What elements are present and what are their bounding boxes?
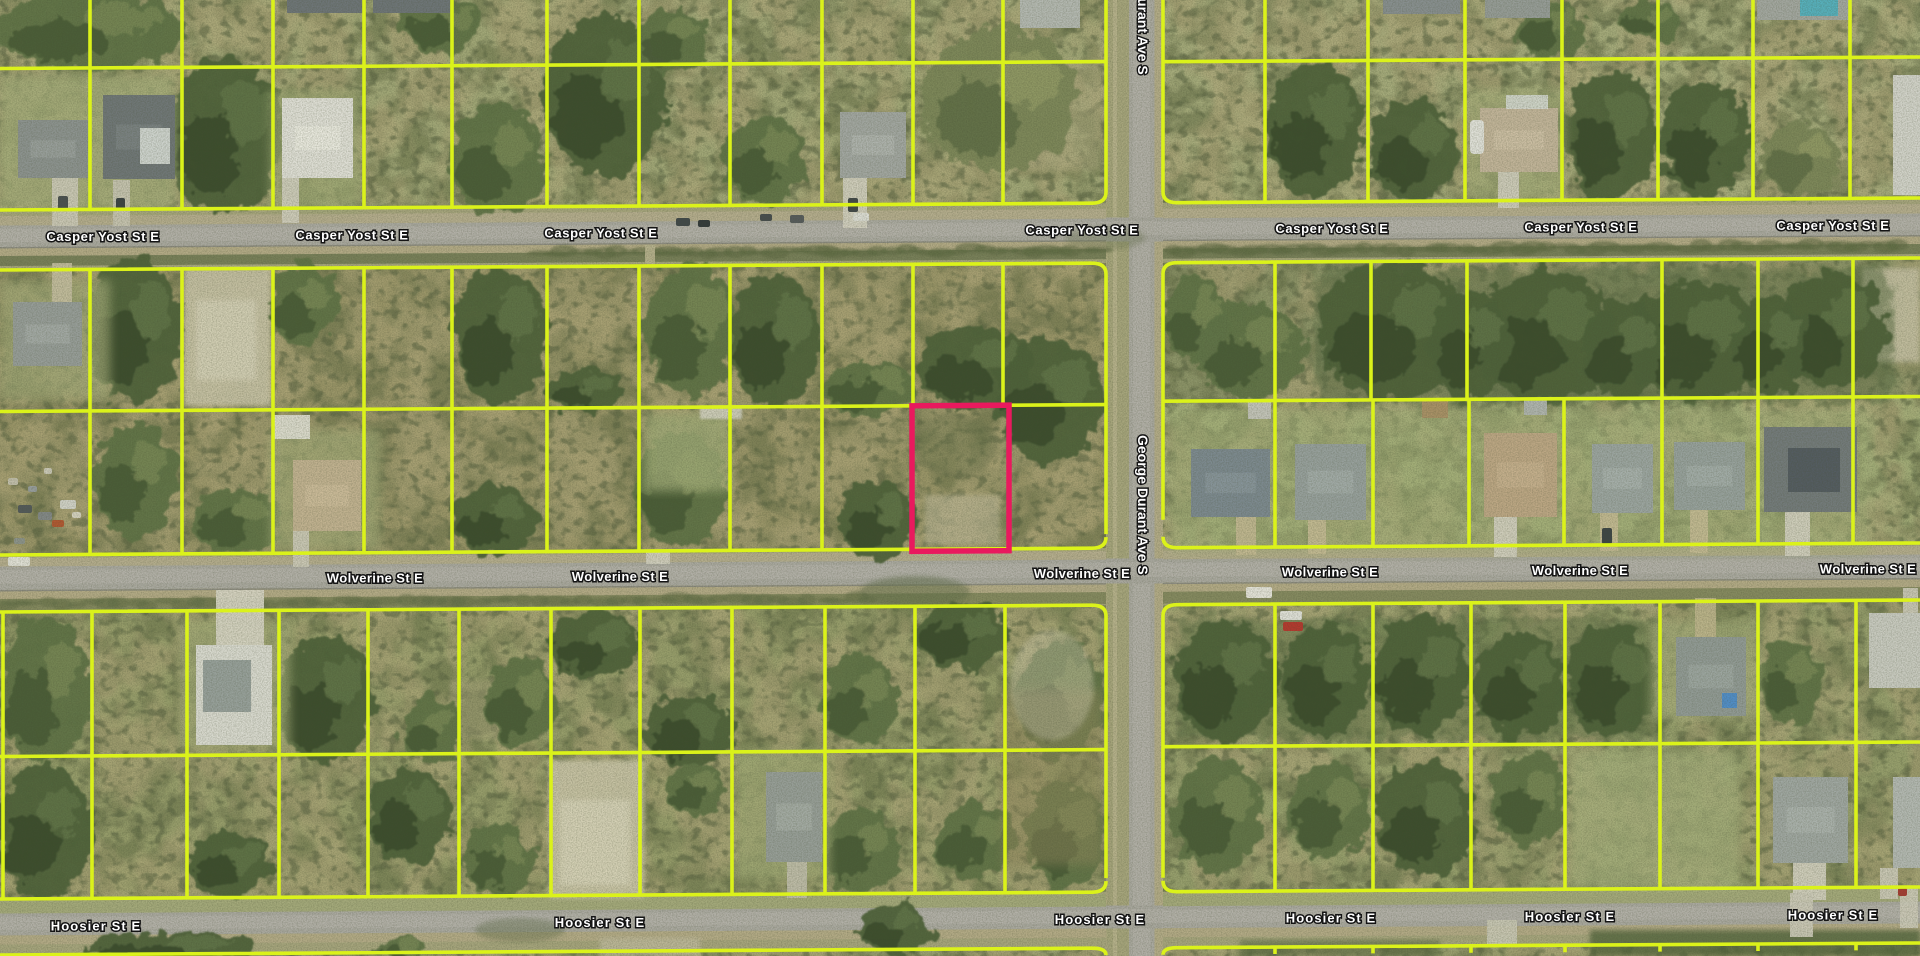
svg-text:Wolverine St E: Wolverine St E — [1532, 563, 1628, 578]
svg-text:Hoosier St E: Hoosier St E — [1525, 909, 1616, 924]
svg-text:Wolverine St E: Wolverine St E — [1282, 565, 1378, 580]
svg-text:Wolverine St E: Wolverine St E — [1820, 561, 1916, 576]
svg-text:George Durant Ave S: George Durant Ave S — [1135, 435, 1151, 575]
svg-text:Hoosier St E: Hoosier St E — [1286, 911, 1377, 926]
svg-text:Casper Yost St E: Casper Yost St E — [1776, 218, 1889, 233]
svg-text:Casper Yost St E: Casper Yost St E — [1025, 223, 1138, 238]
svg-text:Hoosier St E: Hoosier St E — [1788, 908, 1879, 923]
svg-text:Hoosier St E: Hoosier St E — [555, 915, 646, 930]
svg-text:Casper Yost St E: Casper Yost St E — [46, 229, 159, 244]
svg-text:Wolverine St E: Wolverine St E — [1034, 566, 1130, 581]
svg-text:Hoosier St E: Hoosier St E — [1055, 912, 1146, 927]
svg-text:Wolverine St E: Wolverine St E — [572, 569, 668, 584]
svg-text:Hoosier St E: Hoosier St E — [51, 918, 142, 933]
svg-text:Casper Yost St E: Casper Yost St E — [1275, 221, 1388, 236]
svg-text:Casper Yost St E: Casper Yost St E — [544, 226, 657, 241]
svg-text:Wolverine St E: Wolverine St E — [327, 571, 423, 586]
svg-text:Casper Yost St E: Casper Yost St E — [295, 227, 408, 242]
svg-text:George Durant Ave S: George Durant Ave S — [1135, 0, 1151, 75]
svg-text:Casper Yost St E: Casper Yost St E — [1524, 220, 1637, 235]
